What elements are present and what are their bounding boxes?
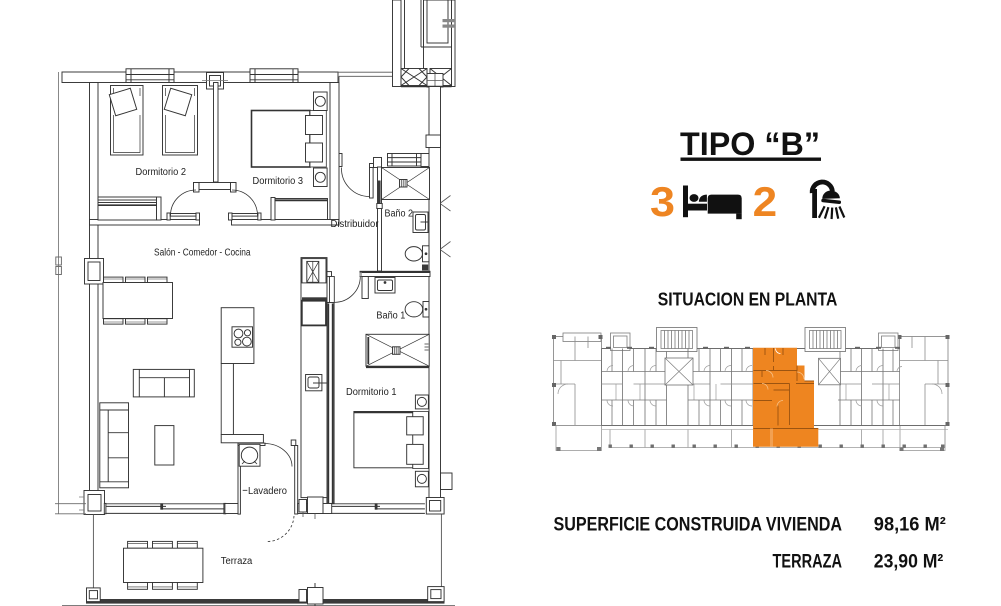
svg-text:SUPERFICIE CONSTRUIDA VIVIENDA: SUPERFICIE CONSTRUIDA VIVIENDA [554,515,843,536]
svg-text:Distribuidor: Distribuidor [331,219,380,230]
svg-text:Lavadero: Lavadero [248,486,288,497]
svg-text:98,16 M²: 98,16 M² [874,515,946,536]
svg-text:3: 3 [650,178,675,225]
svg-text:Salón - Comedor - Cocina: Salón - Comedor - Cocina [154,247,251,258]
svg-text:2: 2 [753,178,778,225]
svg-text:Dormitorio 2: Dormitorio 2 [136,167,187,178]
svg-text:23,90 M²: 23,90 M² [874,552,944,573]
svg-text:TIPO “B”: TIPO “B” [680,126,820,162]
svg-text:Dormitorio 1: Dormitorio 1 [346,387,397,398]
svg-text:SITUACION EN PLANTA: SITUACION EN PLANTA [658,289,838,309]
svg-text:Baño 1: Baño 1 [376,310,405,321]
svg-text:TERRAZA: TERRAZA [773,552,843,573]
svg-text:Dormitorio 3: Dormitorio 3 [253,176,304,187]
svg-text:Terraza: Terraza [221,556,253,567]
svg-text:Baño 2: Baño 2 [385,209,414,220]
